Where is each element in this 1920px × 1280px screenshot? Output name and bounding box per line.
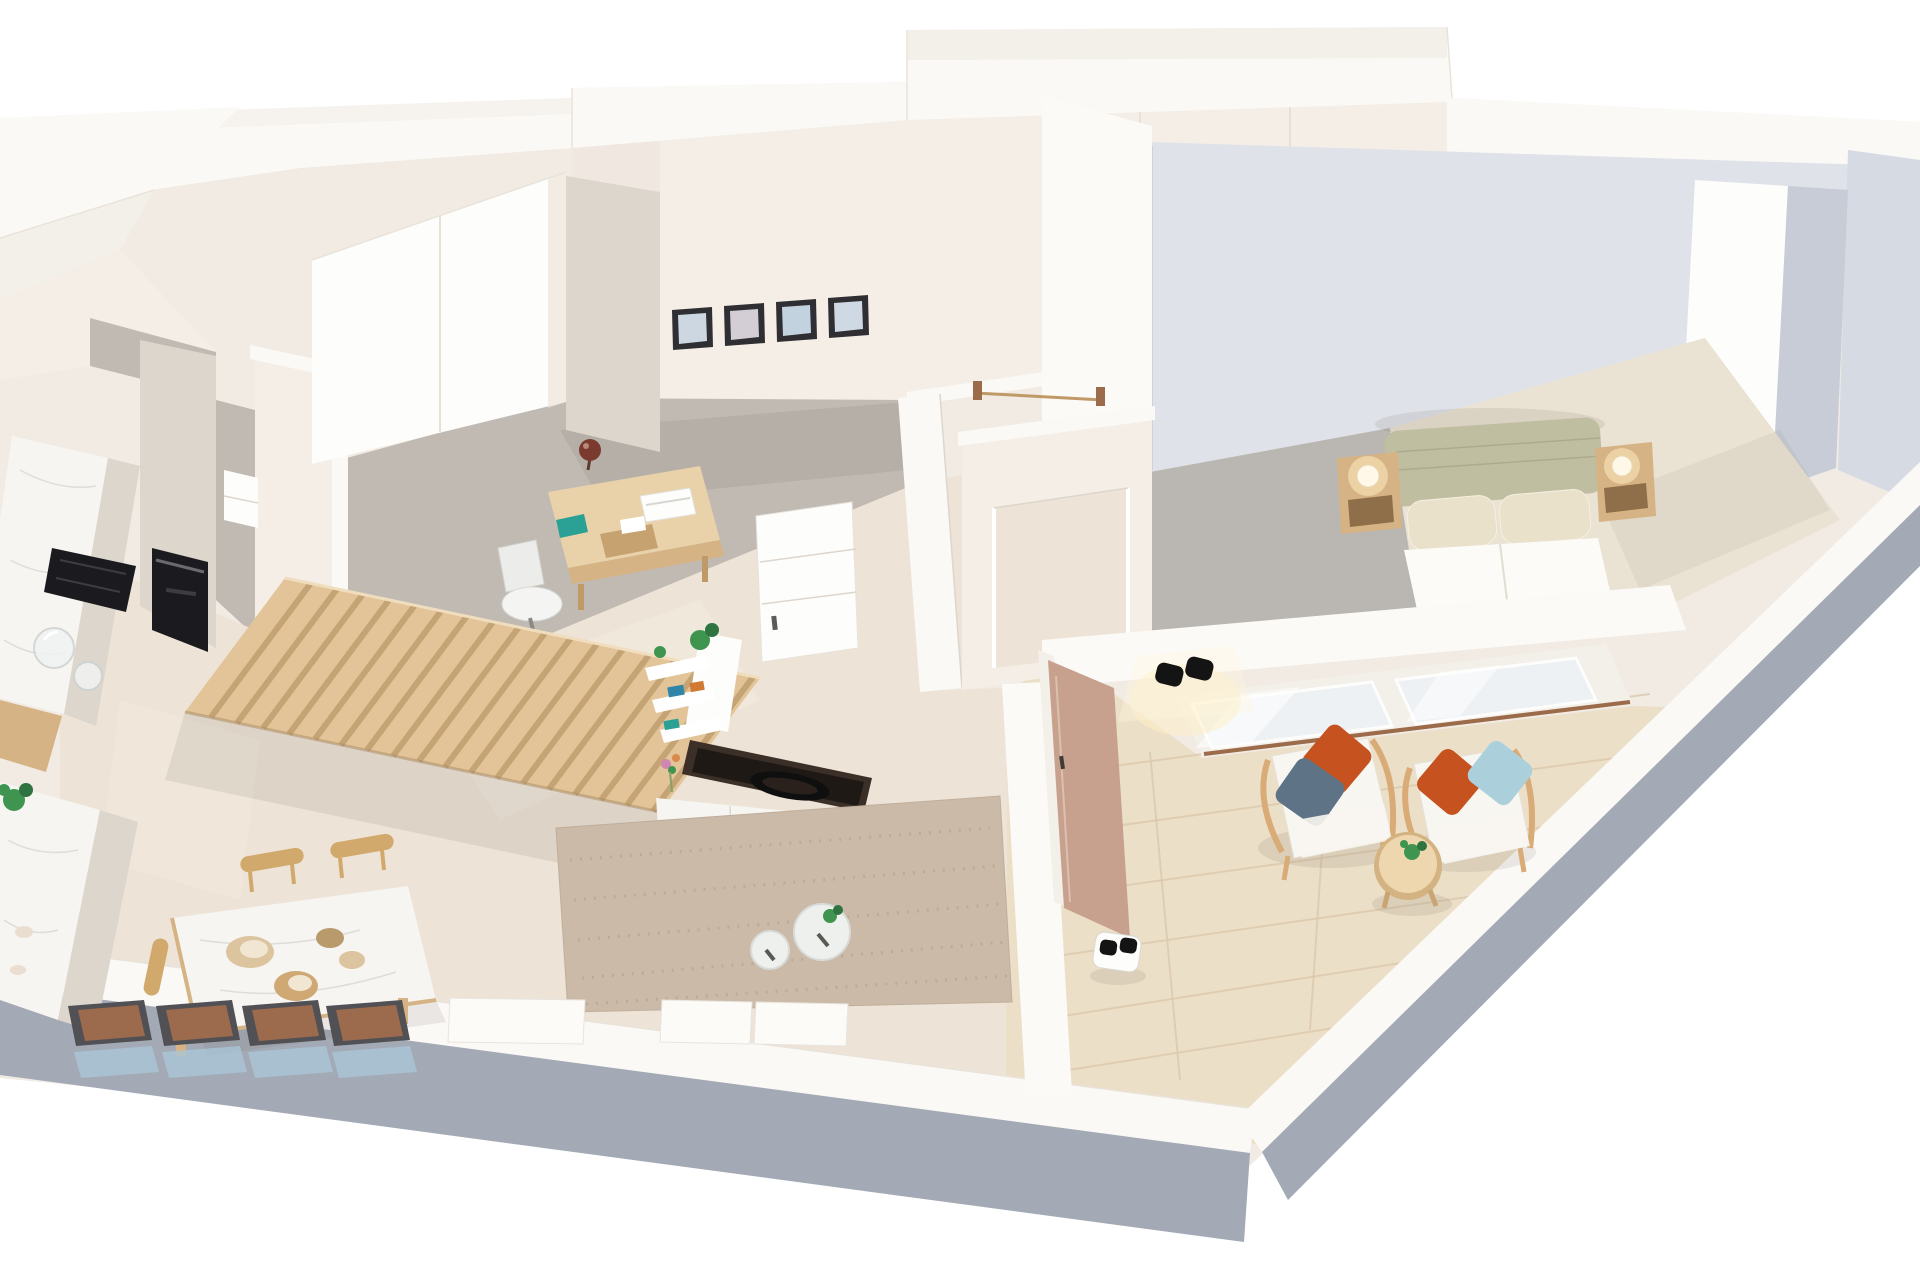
- glow-lamp: [1357, 465, 1379, 487]
- glow-lamp: [1612, 456, 1632, 476]
- shell-decor: [10, 965, 26, 975]
- picture-frame: [724, 303, 765, 346]
- shell-decor: [15, 926, 33, 938]
- bar-chair: [68, 1000, 159, 1078]
- picture-frame: [828, 295, 869, 338]
- pillow: [1498, 488, 1592, 546]
- sphere-lamp: [579, 439, 601, 461]
- speckled-rug: [556, 796, 1012, 1012]
- picture-frame: [776, 299, 817, 342]
- floorplan-svg: [0, 0, 1920, 1280]
- nightstand-right: [1595, 442, 1656, 522]
- white-drawer-door: [756, 502, 858, 662]
- pillow: [1406, 494, 1498, 551]
- tall-beige-cabinet: [566, 176, 660, 452]
- robot-vacuum: [1090, 931, 1146, 985]
- bar-chair: [242, 1000, 333, 1078]
- glass-coffee-table-small: [751, 931, 789, 969]
- glass-coffee-table-large: [794, 904, 850, 960]
- bar-chair: [156, 1000, 247, 1078]
- picture-frame: [672, 307, 713, 350]
- nightstand-left: [1337, 452, 1402, 534]
- bar-chair: [326, 1000, 417, 1078]
- floorplan-render: [0, 0, 1920, 1280]
